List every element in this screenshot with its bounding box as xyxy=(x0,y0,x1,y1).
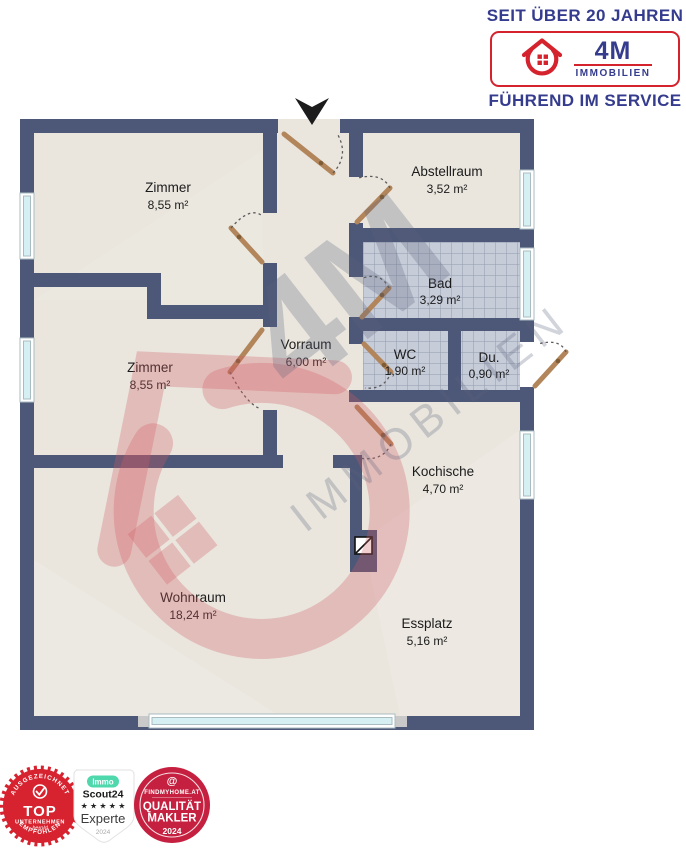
room-area: 4,70 m² xyxy=(423,482,464,496)
room-area: 3,52 m² xyxy=(427,182,468,196)
page: { "header": { "tagline_top": "SEIT ÜBER … xyxy=(0,0,686,850)
immoscout-stars: ★ ★ ★ ★ ★ xyxy=(81,802,126,811)
badge-top-unternehmen: AUSGEZEICHNET TOP UNTERNEHMEN herold EMP… xyxy=(2,768,79,845)
findmyhome-title1: QUALITÄT xyxy=(143,800,201,813)
immoscout-label: Experte xyxy=(81,811,126,826)
window xyxy=(520,170,534,229)
room-label: Zimmer xyxy=(145,180,191,195)
immoscout-year: 2024 xyxy=(96,829,111,836)
room-area: 1,90 m² xyxy=(385,364,426,378)
room-label: Kochische xyxy=(412,464,474,479)
room-area: 8,55 m² xyxy=(148,198,189,212)
findmyhome-year: 2024 xyxy=(163,826,182,836)
window xyxy=(20,193,34,259)
badge-immoscout24-experte: Immo Scout24 ★ ★ ★ ★ ★ Experte 2024 xyxy=(74,770,134,842)
immoscout-brand: Scout24 xyxy=(83,789,124,801)
immoscout-pill: Immo xyxy=(92,778,113,787)
at-icon: @ xyxy=(167,776,178,788)
badge-title: TOP xyxy=(23,803,57,820)
room-label: Abstellraum xyxy=(411,164,482,179)
window xyxy=(20,338,34,402)
window xyxy=(138,714,407,728)
findmyhome-title2: MAKLER xyxy=(147,813,197,825)
room-label: Essplatz xyxy=(401,616,452,631)
room-area: 5,16 m² xyxy=(407,634,448,648)
floorplan-canvas: Zimmer 8,55 m² Abstellraum 3,52 m² Bad 3… xyxy=(0,0,686,850)
badge-findmyhome-qualitaet-makler: @ FINDMYHOME.AT QUALITÄT MAKLER 2024 xyxy=(134,767,210,843)
findmyhome-brand: FINDMYHOME.AT xyxy=(144,790,199,796)
window xyxy=(520,431,534,499)
